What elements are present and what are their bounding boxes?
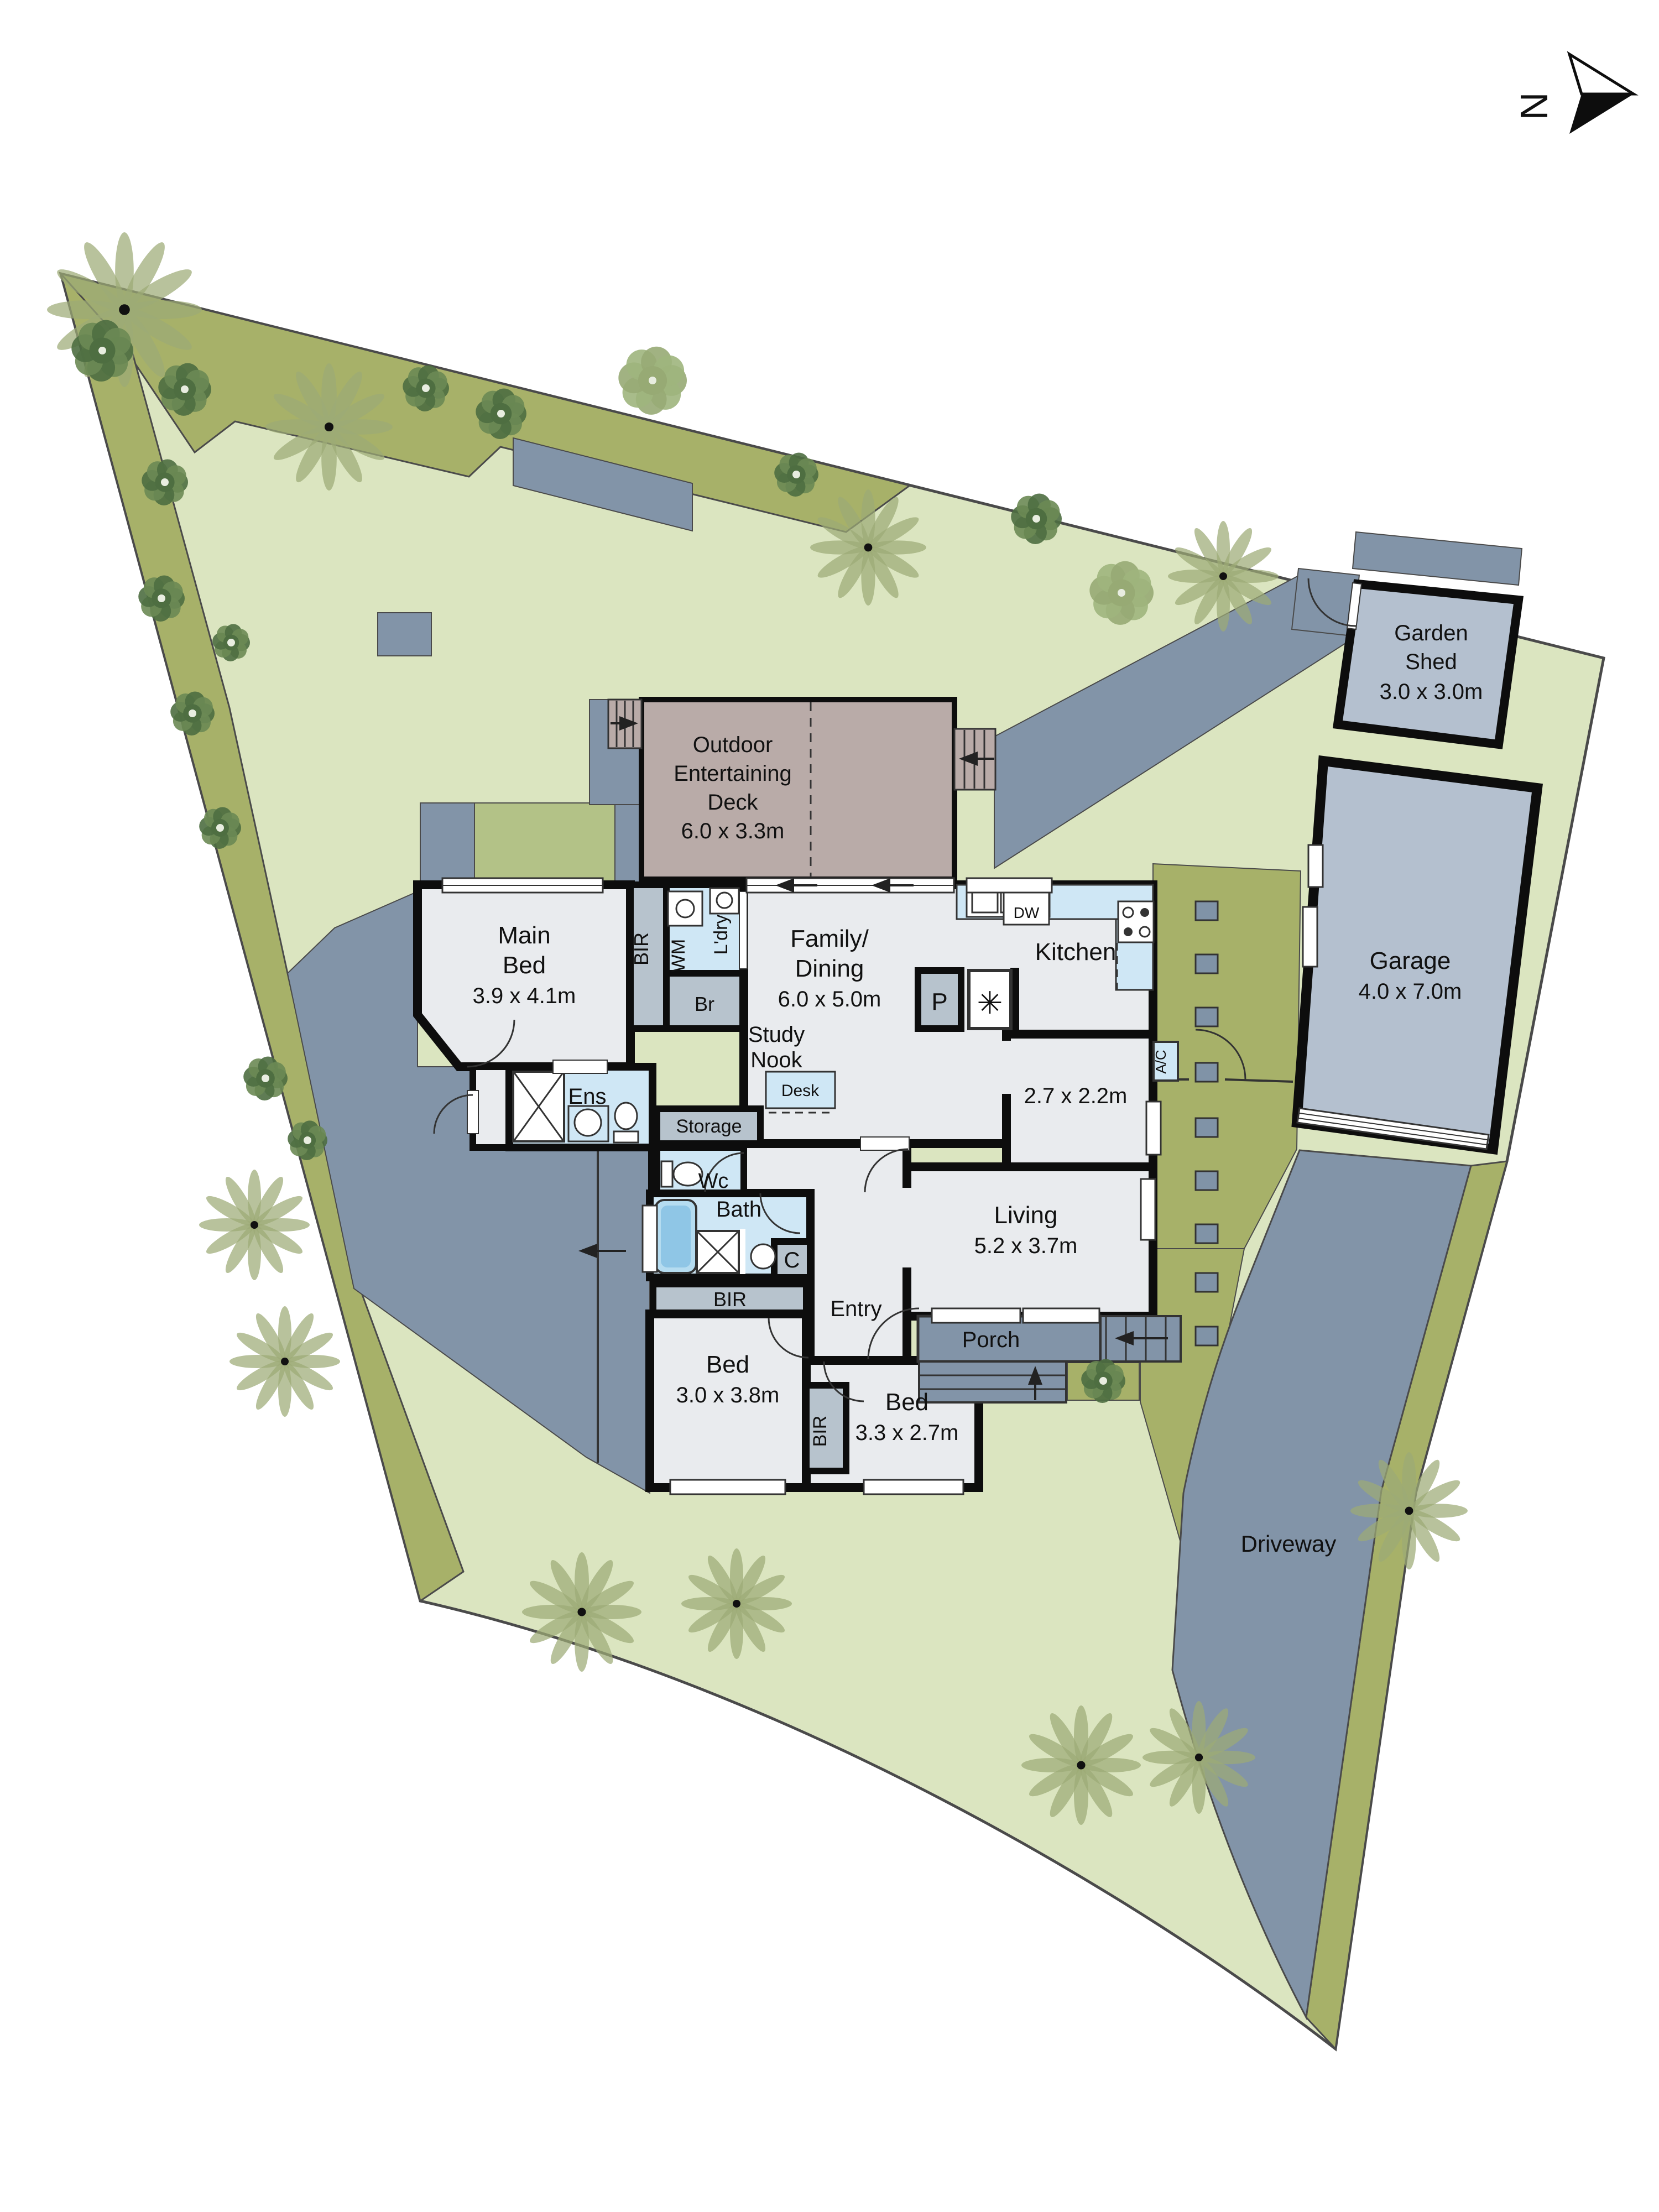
garage-window	[1308, 845, 1323, 887]
fridge-icon: ✳	[977, 985, 1003, 1020]
window	[864, 1480, 963, 1494]
garden-square	[474, 803, 615, 885]
label-bir: BIR	[630, 932, 653, 966]
label-family-dims: 6.0 x 5.0m	[778, 987, 881, 1011]
label-family: Dining	[795, 955, 864, 982]
ens-slider-door	[553, 1060, 607, 1073]
label-br: Br	[695, 993, 714, 1015]
shrub	[1011, 494, 1062, 544]
window	[643, 1206, 657, 1272]
door-gap	[467, 1091, 478, 1134]
north-arrow-outline	[1569, 54, 1634, 94]
light-tree	[618, 347, 687, 415]
label-bath: Bath	[716, 1197, 761, 1222]
label-kitchen: Kitchen	[1035, 938, 1117, 966]
label-cupboard: C	[784, 1248, 800, 1272]
deck-label: Entertaining	[674, 761, 791, 786]
shed-label: Shed	[1405, 650, 1457, 674]
ens-cistern	[614, 1131, 638, 1142]
label-bir2: BIR	[810, 1416, 831, 1447]
window	[670, 1480, 785, 1494]
trunk-dot	[577, 1608, 586, 1616]
trunk-dot	[304, 1136, 311, 1144]
label-main-bed-dims: 3.9 x 4.1m	[473, 984, 576, 1008]
label-ldry: L'dry	[711, 915, 732, 955]
label-porch: Porch	[962, 1328, 1020, 1352]
door-gap	[860, 1137, 909, 1150]
window	[1023, 1308, 1099, 1323]
shrub	[774, 452, 818, 496]
label-nook: Nook	[750, 1048, 802, 1072]
trunk-dot	[649, 377, 656, 384]
garage-window	[1303, 907, 1317, 967]
label-pantry: P	[931, 988, 947, 1015]
trunk-dot	[216, 824, 224, 832]
layer-north: N	[1512, 54, 1634, 134]
label-ac: A/C	[1152, 1050, 1169, 1073]
trunk-dot	[181, 385, 189, 393]
palm-tree	[199, 1170, 310, 1280]
trunk-dot	[325, 422, 333, 431]
trunk-dot	[864, 544, 873, 552]
trunk-dot	[189, 709, 196, 717]
layer-deck: OutdoorEntertainingDeck6.0 x 3.3m	[608, 700, 995, 879]
garage-label: Garage	[1370, 947, 1451, 974]
trunk-dot	[251, 1221, 258, 1229]
stepping-stone	[1196, 1118, 1218, 1137]
dishwasher-label: DW	[1014, 904, 1040, 921]
trunk-dot	[158, 594, 165, 602]
label-main-bed: Bed	[503, 952, 546, 979]
stepping-stone	[1196, 901, 1218, 920]
label-entry: Entry	[830, 1297, 881, 1321]
laundry-door-gap	[739, 891, 747, 969]
label-bed3: Bed	[706, 1351, 749, 1378]
label-bed2: Bed	[885, 1389, 928, 1416]
wm-drum-icon	[676, 900, 694, 917]
deck-label: Outdoor	[693, 733, 773, 757]
opening-patch	[1010, 920, 1019, 968]
trunk-dot	[281, 1358, 289, 1365]
ens-toilet-icon	[615, 1103, 637, 1129]
trunk-dot	[119, 304, 130, 315]
opening-patch	[902, 1188, 911, 1267]
label-bir3: BIR	[713, 1288, 747, 1311]
trunk-dot	[1118, 589, 1125, 597]
label-ens: Ens	[568, 1084, 607, 1109]
stepping-stone	[1196, 1327, 1218, 1345]
label-desk: Desk	[781, 1082, 820, 1100]
trunk-dot	[1032, 515, 1040, 523]
trunk-dot	[422, 384, 430, 392]
label-main-bed: Main	[498, 922, 550, 949]
stepping-stone	[1196, 1008, 1218, 1026]
burner-icon	[1140, 908, 1149, 917]
palm-tree	[229, 1306, 340, 1417]
trunk-dot	[161, 478, 169, 486]
outdoor-deck	[641, 700, 954, 879]
stepping-stone	[1196, 1273, 1218, 1292]
burner-icon	[1140, 927, 1150, 937]
label-wc: Wc	[698, 1170, 729, 1193]
bathtub-inner	[661, 1206, 691, 1267]
trunk-dot	[98, 347, 106, 354]
label-bed2-dims: 3.3 x 2.7m	[855, 1421, 959, 1445]
kitchen-sink-basin	[972, 891, 998, 912]
window	[967, 878, 1052, 893]
shed-dims: 3.0 x 3.0m	[1380, 680, 1483, 704]
label-living-dims: 5.2 x 3.7m	[974, 1234, 1078, 1258]
trunk-dot	[1405, 1507, 1413, 1515]
trunk-dot	[262, 1074, 269, 1082]
garage-dims: 4.0 x 7.0m	[1359, 979, 1462, 1004]
label-bed3-dims: 3.0 x 3.8m	[676, 1383, 780, 1407]
opening-patch	[1002, 1041, 1011, 1094]
trough-bowl-icon	[717, 893, 732, 908]
deck-label: Deck	[707, 790, 758, 815]
trunk-dot	[1099, 1377, 1107, 1385]
stepping-stone	[1196, 1171, 1218, 1190]
window	[932, 1308, 1020, 1323]
wc-cistern	[661, 1161, 672, 1187]
label-storage: Storage	[676, 1116, 742, 1137]
deck-dims: 6.0 x 3.3m	[681, 819, 785, 843]
north-arrow-solid	[1569, 94, 1634, 134]
ens-basin-icon	[575, 1109, 601, 1136]
site-plan: DrivewayOutdoorEntertainingDeck6.0 x 3.3…	[0, 0, 1659, 2212]
lawn-paver	[378, 613, 431, 656]
north-letter: N	[1512, 92, 1556, 121]
burner-icon	[1124, 927, 1133, 936]
stepping-stone	[1196, 954, 1218, 973]
window	[1146, 1102, 1161, 1155]
trunk-dot	[733, 1600, 740, 1608]
trunk-dot	[227, 639, 235, 646]
shed-rear-path	[1353, 532, 1522, 585]
label-family: Family/	[790, 925, 869, 952]
trunk-dot	[1195, 1754, 1203, 1761]
stepping-stone	[1196, 1224, 1218, 1243]
stepping-stone	[1196, 1063, 1218, 1082]
trunk-dot	[1219, 572, 1227, 580]
label-living: Living	[994, 1202, 1058, 1229]
burner-icon	[1123, 907, 1133, 917]
trunk-dot	[792, 471, 800, 478]
window	[1141, 1179, 1155, 1240]
label-study: Study	[748, 1022, 805, 1047]
bath-basin-icon	[751, 1244, 775, 1269]
label-meals-dims: 2.7 x 2.2m	[1024, 1084, 1128, 1108]
trunk-dot	[1077, 1761, 1085, 1769]
label-wm: WM	[668, 939, 689, 972]
bath-divider	[740, 1229, 745, 1274]
trunk-dot	[497, 410, 505, 418]
front-steps	[919, 1361, 1066, 1402]
driveway-label: Driveway	[1241, 1531, 1337, 1557]
shed-label: Garden	[1394, 621, 1468, 645]
